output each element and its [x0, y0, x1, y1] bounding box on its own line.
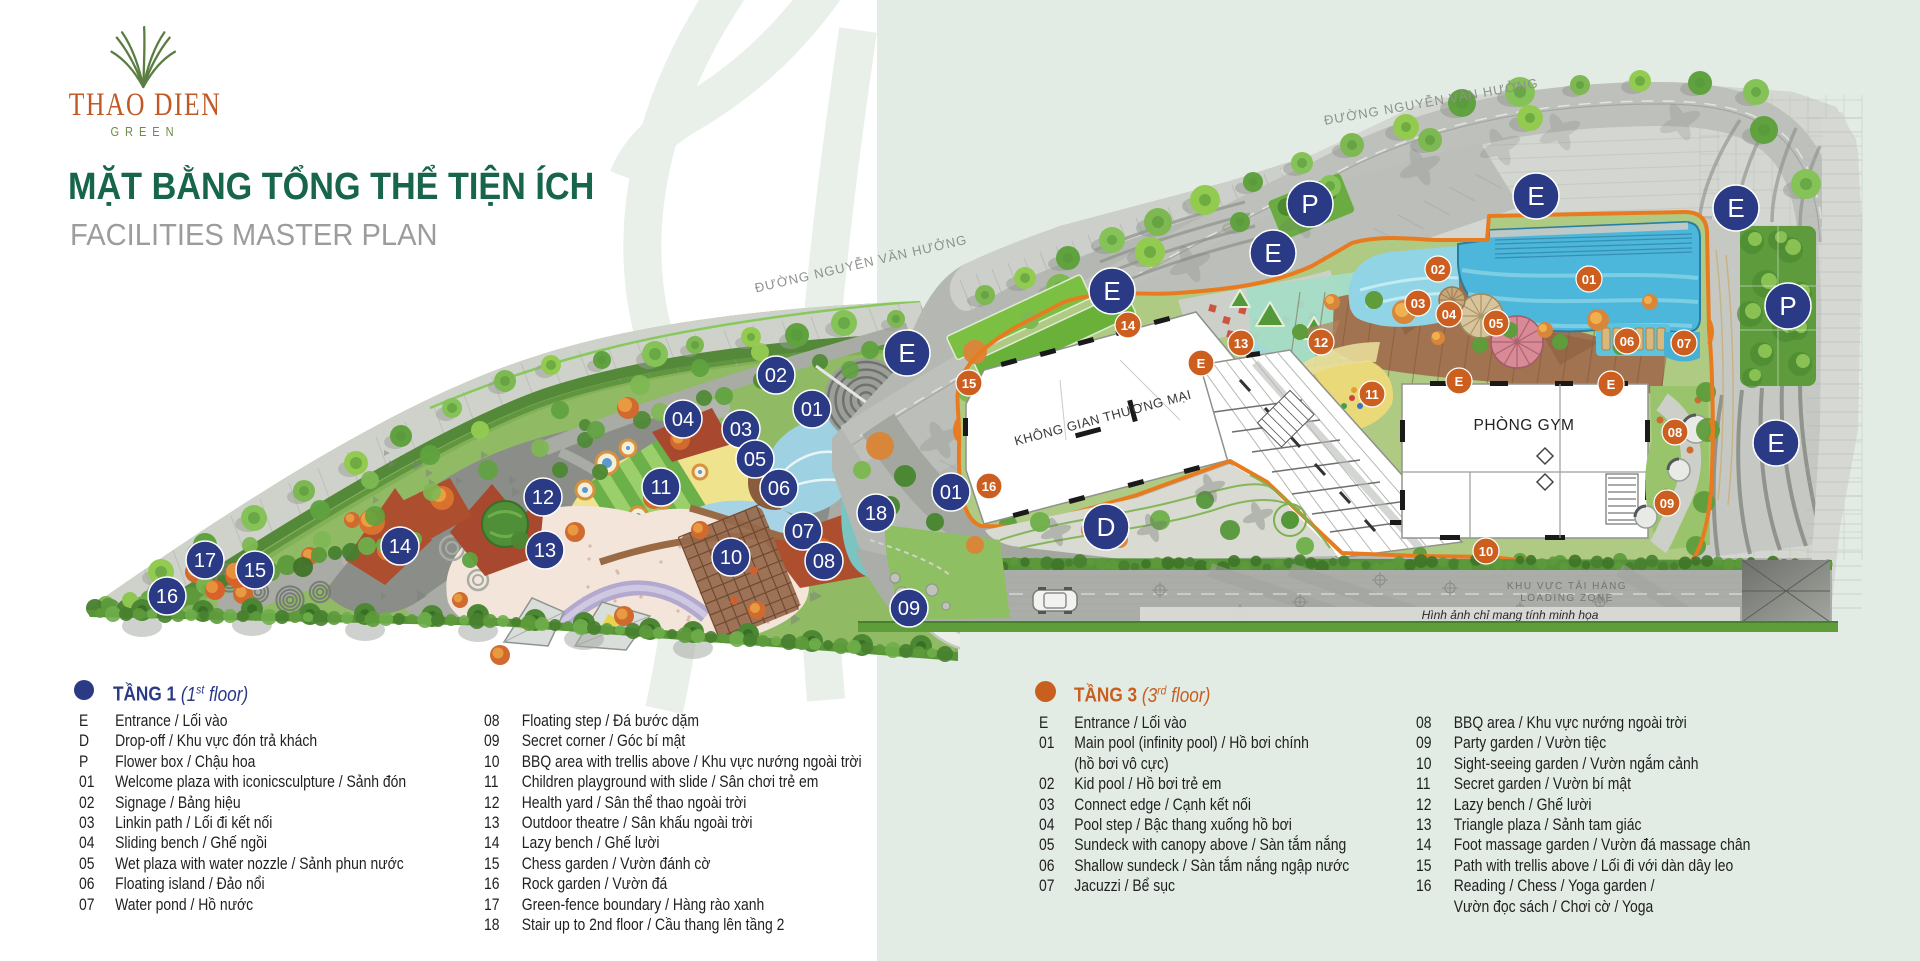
- svg-text:07: 07: [792, 521, 814, 543]
- svg-text:06: 06: [768, 478, 790, 500]
- svg-text:04: 04: [1442, 307, 1457, 322]
- svg-text:P: P: [1301, 189, 1318, 219]
- svg-text:18: 18: [865, 503, 887, 525]
- svg-text:16: 16: [156, 586, 178, 608]
- svg-text:12: 12: [532, 487, 554, 509]
- svg-text:KHU VỰC TẢI HÀNG: KHU VỰC TẢI HÀNG: [1507, 579, 1627, 592]
- svg-text:08: 08: [1668, 425, 1682, 440]
- svg-text:09: 09: [1660, 496, 1674, 511]
- svg-text:10: 10: [1479, 544, 1493, 559]
- svg-text:E: E: [1197, 356, 1206, 371]
- svg-text:01: 01: [1582, 272, 1596, 287]
- svg-text:E: E: [1103, 276, 1120, 306]
- svg-text:04: 04: [672, 409, 694, 431]
- svg-text:01: 01: [940, 482, 962, 504]
- svg-text:11: 11: [1365, 387, 1379, 402]
- svg-text:D: D: [1097, 512, 1116, 542]
- svg-text:05: 05: [744, 449, 766, 471]
- svg-text:E: E: [1727, 193, 1744, 223]
- svg-text:03: 03: [1411, 296, 1425, 311]
- svg-text:02: 02: [765, 365, 787, 387]
- svg-text:17: 17: [194, 550, 216, 572]
- svg-text:09: 09: [898, 598, 920, 620]
- svg-text:11: 11: [651, 477, 672, 499]
- svg-text:14: 14: [389, 536, 411, 558]
- svg-text:LOADING ZONE: LOADING ZONE: [1520, 593, 1614, 604]
- svg-text:13: 13: [534, 540, 556, 562]
- svg-text:PHÒNG GYM: PHÒNG GYM: [1474, 417, 1575, 434]
- svg-text:15: 15: [244, 560, 266, 582]
- svg-text:03: 03: [730, 419, 752, 441]
- svg-text:01: 01: [801, 399, 823, 421]
- svg-text:13: 13: [1234, 336, 1248, 351]
- svg-text:P: P: [1779, 291, 1796, 321]
- svg-text:E: E: [1527, 181, 1544, 211]
- svg-text:E: E: [1767, 428, 1784, 458]
- svg-text:07: 07: [1677, 336, 1691, 351]
- svg-text:16: 16: [982, 479, 996, 494]
- svg-text:15: 15: [962, 376, 976, 391]
- svg-text:02: 02: [1431, 262, 1445, 277]
- svg-text:05: 05: [1489, 316, 1503, 331]
- svg-text:ĐƯỜNG NGUYỄN VĂN HƯỞNG: ĐƯỜNG NGUYỄN VĂN HƯỞNG: [753, 232, 968, 296]
- svg-text:E: E: [1607, 377, 1616, 392]
- svg-text:E: E: [898, 338, 915, 368]
- svg-text:14: 14: [1121, 318, 1136, 333]
- svg-text:E: E: [1264, 238, 1281, 268]
- svg-text:10: 10: [720, 547, 742, 569]
- svg-text:Hình ảnh chỉ mang tính minh họ: Hình ảnh chỉ mang tính minh họa: [1422, 608, 1599, 622]
- svg-text:06: 06: [1620, 334, 1634, 349]
- svg-text:08: 08: [813, 551, 835, 573]
- svg-text:E: E: [1455, 374, 1464, 389]
- svg-text:12: 12: [1314, 335, 1328, 350]
